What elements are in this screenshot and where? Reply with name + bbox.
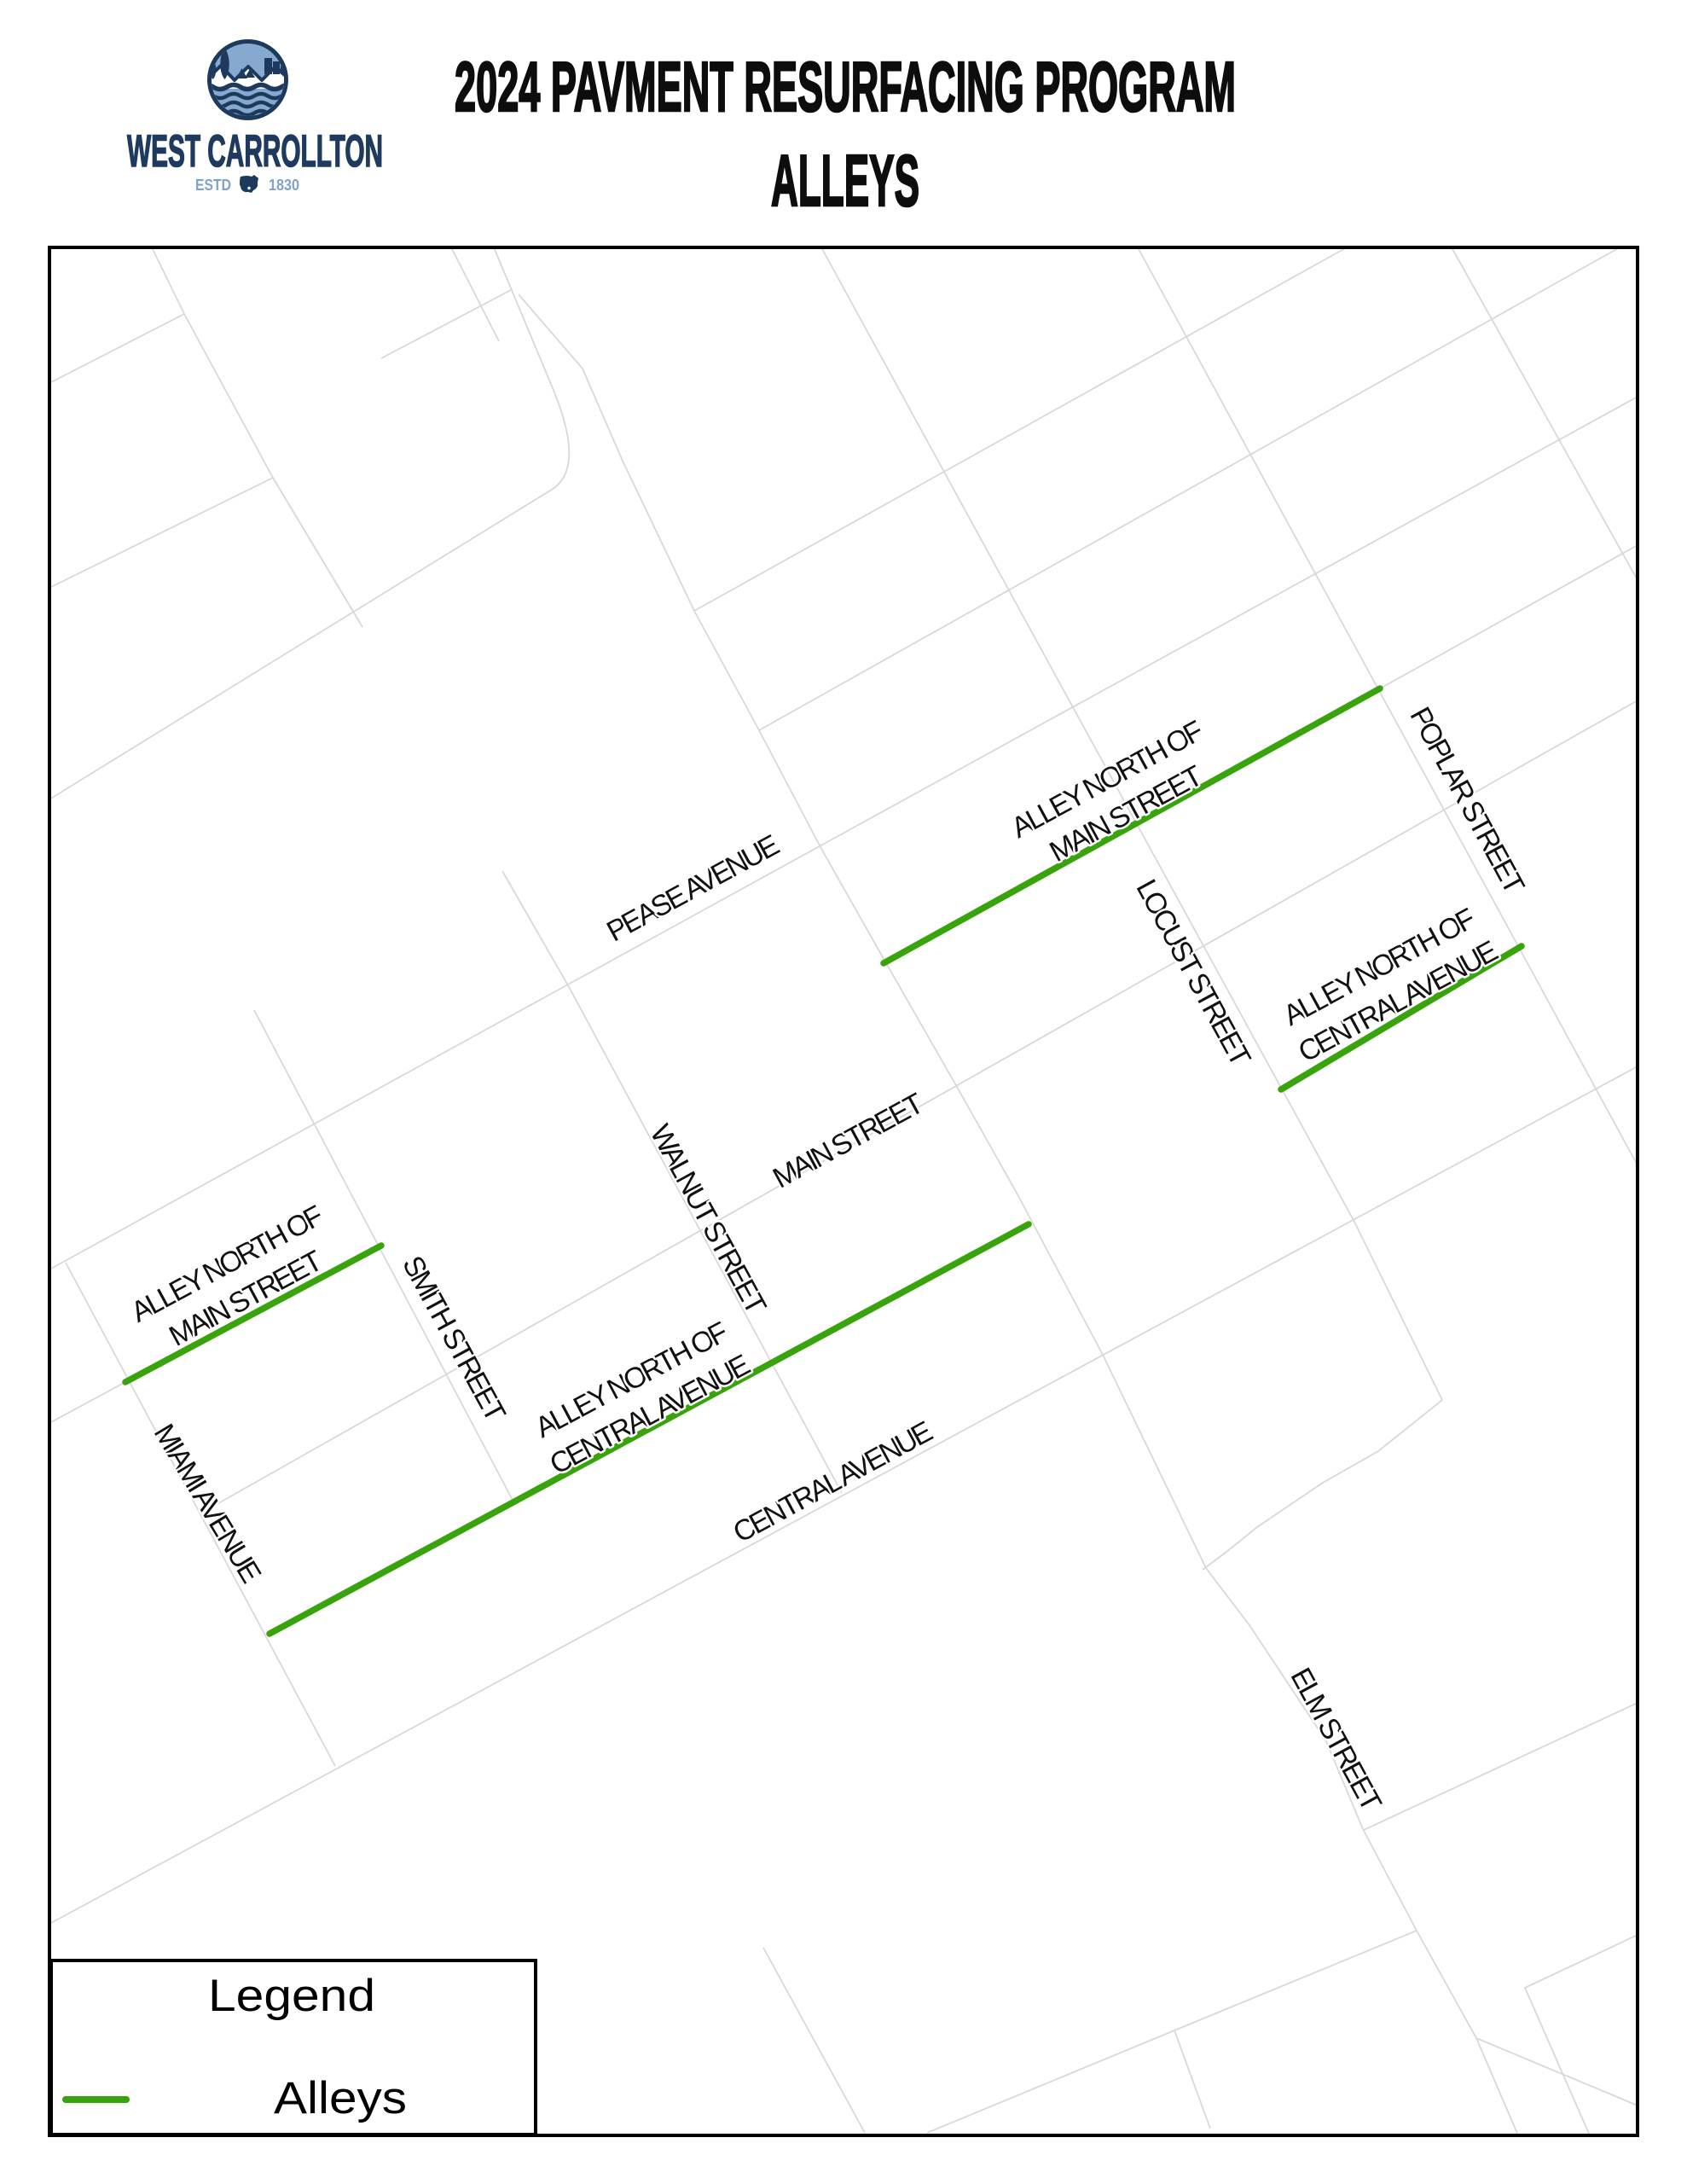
svg-text:1830: 1830 [269, 177, 299, 194]
svg-text:Legend: Legend [208, 1971, 375, 2021]
svg-text:Alleys: Alleys [274, 2073, 407, 2123]
svg-text:WEST CARROLLTON: WEST CARROLLTON [127, 126, 383, 177]
svg-text:ESTD: ESTD [195, 177, 231, 194]
svg-text:ALLEYS: ALLEYS [771, 141, 919, 222]
svg-text:2024 PAVMENT RESURFACING PROGR: 2024 PAVMENT RESURFACING PROGRAM [455, 47, 1236, 126]
